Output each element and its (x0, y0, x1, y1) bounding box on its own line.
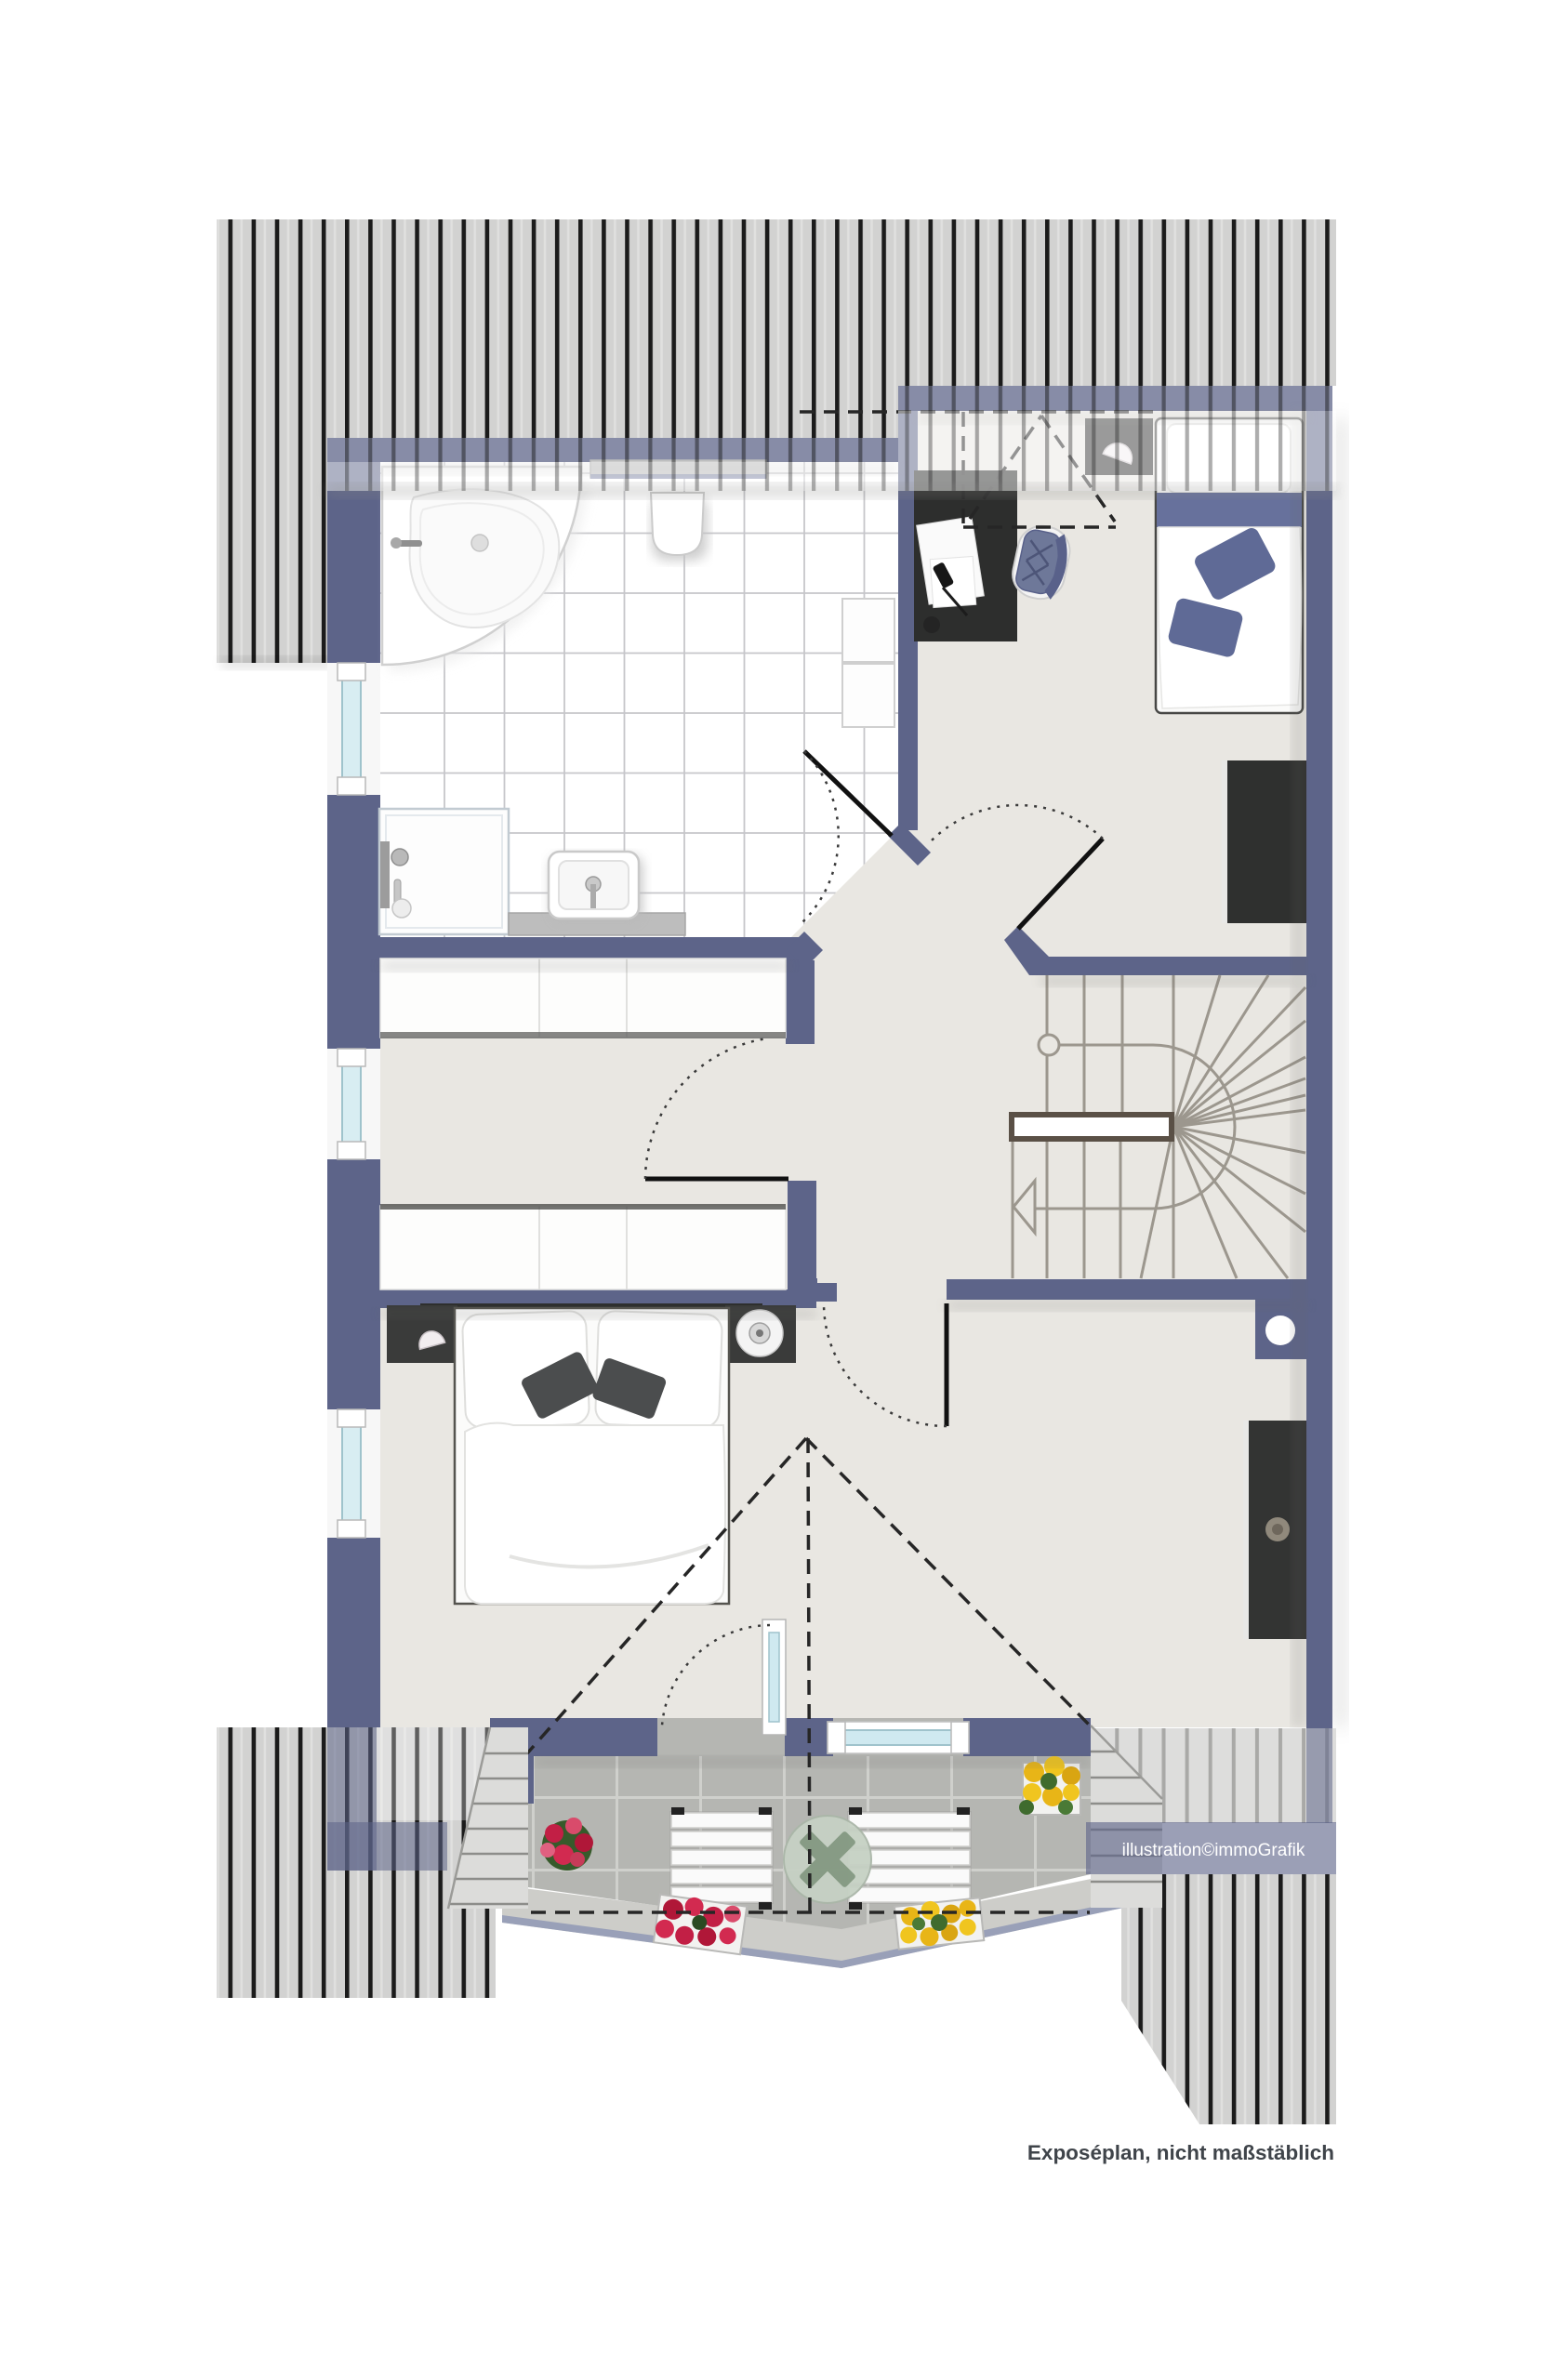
svg-text:Exposéplan, nicht maßstäblich: Exposéplan, nicht maßstäblich (1027, 2141, 1334, 2164)
svg-text:illustration©immoGrafik: illustration©immoGrafik (1122, 1841, 1305, 1860)
